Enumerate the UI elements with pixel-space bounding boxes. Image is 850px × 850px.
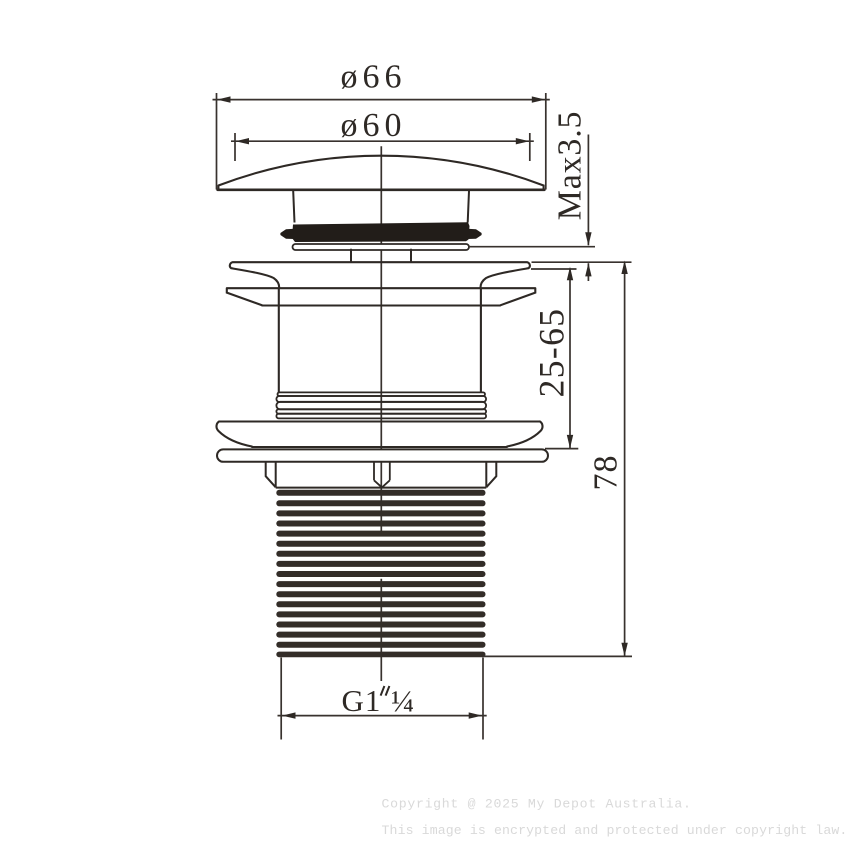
svg-text:ø66: ø66 [341,59,407,96]
svg-text:G1: G1 [342,683,382,718]
svg-text:25-65: 25-65 [532,308,572,398]
svg-text:Copyright @ 2025 My Depot Aust: Copyright @ 2025 My Depot Australia. [382,797,692,812]
svg-text:78: 78 [588,455,625,491]
svg-text:ø60: ø60 [341,107,407,144]
svg-text:¼: ¼ [391,684,414,719]
svg-text:This image is encrypted and pr: This image is encrypted and protected un… [382,823,848,838]
svg-text:Max3.5: Max3.5 [552,111,589,221]
